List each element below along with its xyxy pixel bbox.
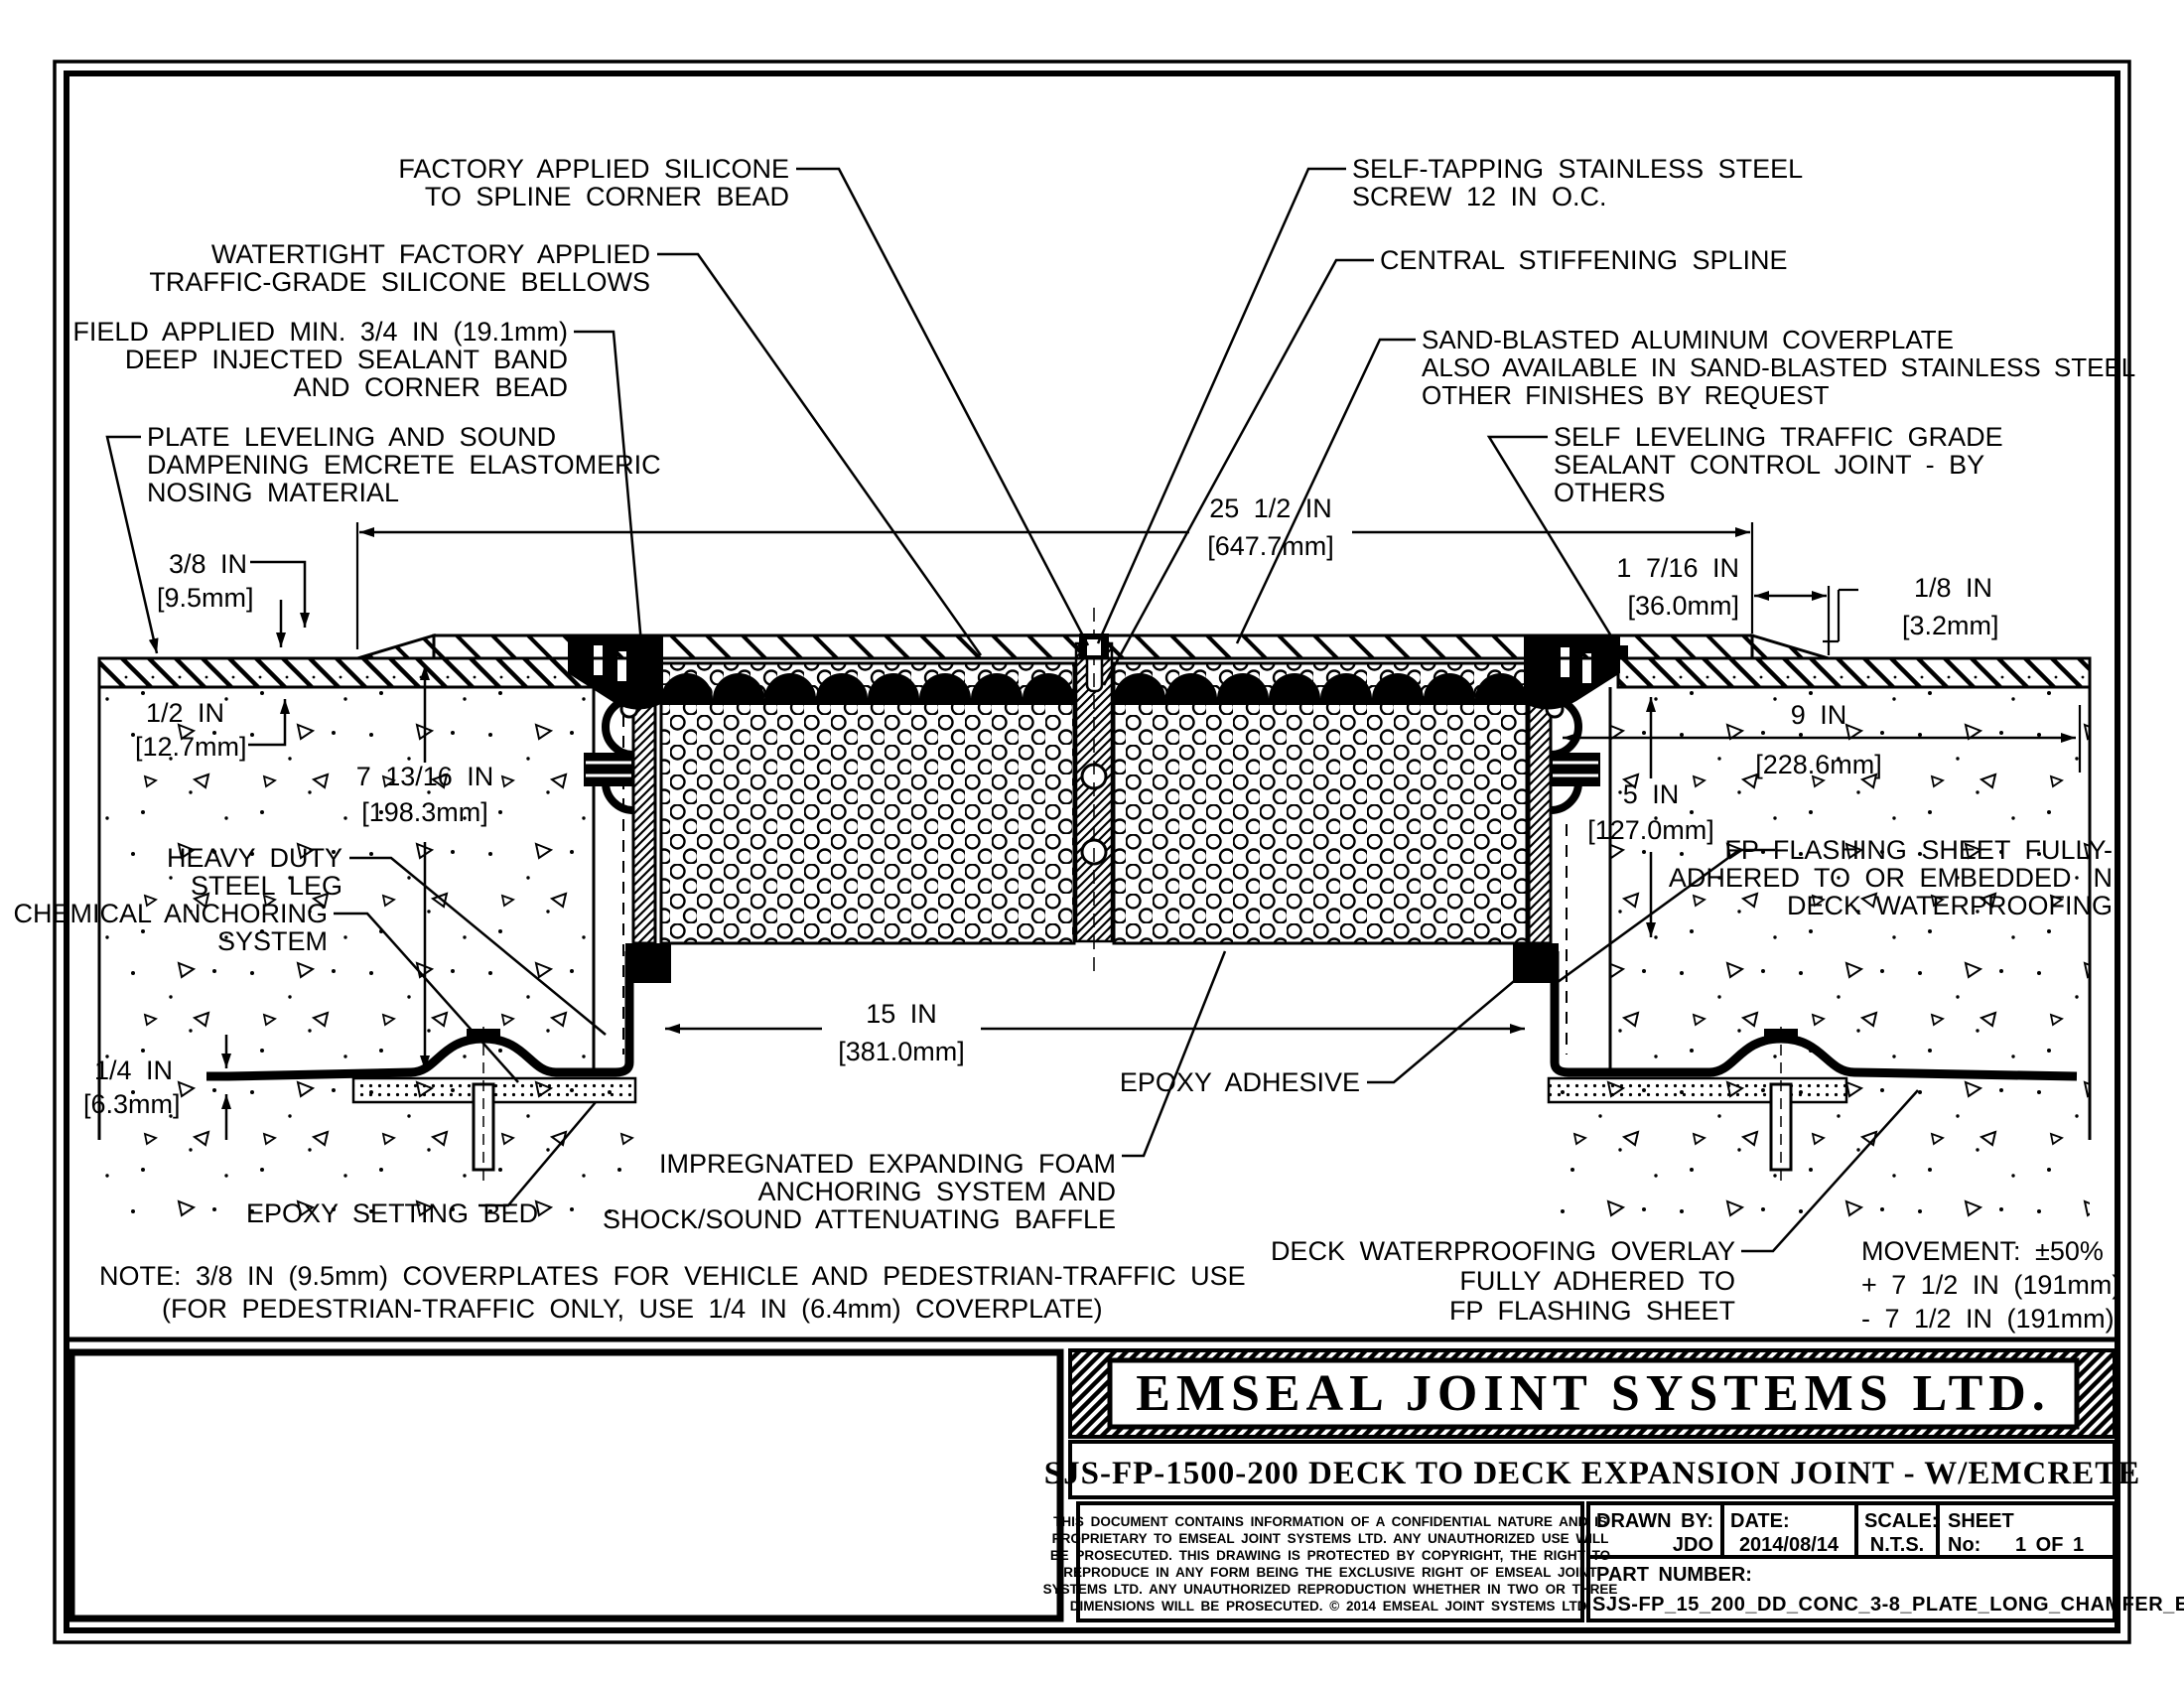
- label: SYSTEM: [217, 926, 328, 956]
- label: PLATE LEVELING AND SOUND: [147, 422, 556, 452]
- label: STEEL LEG: [191, 871, 342, 901]
- movement-plus: + 7 1/2 IN (191mm): [1861, 1270, 2120, 1300]
- dim-blockout-mm: [198.3mm]: [361, 797, 488, 827]
- dim-cover-width: 25 1/2 IN [647.7mm]: [357, 493, 1752, 649]
- label: NOSING MATERIAL: [147, 478, 399, 507]
- title-block: EMSEAL JOINT SYSTEMS LTD. SJS-FP-1500-20…: [71, 1350, 2184, 1620]
- dim-topping-in: 1/2 IN: [146, 698, 224, 728]
- dim-plate-thk-mm: [9.5mm]: [157, 583, 254, 613]
- legal-line: REPRODUCE IN ANY FORM BEING THE EXCLUSIV…: [1063, 1565, 1597, 1580]
- foam-right: [1114, 663, 1527, 943]
- date-value: 2014/08/14: [1739, 1534, 1840, 1556]
- label: DAMPENING EMCRETE ELASTOMERIC: [147, 450, 661, 480]
- legal-line: PROPRIETARY TO EMSEAL JOINT SYSTEMS LTD.…: [1052, 1531, 1609, 1546]
- dim-blockout-in: 7 13/16 IN: [356, 762, 494, 791]
- legal-line: BE PROSECUTED. THIS DRAWING IS PROTECTED…: [1050, 1548, 1610, 1563]
- dim-foam-depth-in: 5 IN: [1623, 779, 1680, 809]
- dim-recess: 1/8 IN [3.2mm]: [1823, 573, 1999, 641]
- field-drawn-by: DRAWN BY: JDO: [1596, 1510, 1713, 1556]
- drawing-title: SJS-FP-1500-200 DECK TO DECK EXPANSION J…: [1044, 1456, 2141, 1491]
- dim-recess-mm: [3.2mm]: [1902, 611, 1999, 640]
- dim-overlay-in: 9 IN: [1791, 700, 1847, 730]
- dim-flashing-mm: [6.3mm]: [83, 1089, 181, 1119]
- label: OTHER FINISHES BY REQUEST: [1422, 380, 1830, 410]
- sheet-value: 1 OF 1: [2015, 1534, 2084, 1556]
- coverplate-chamfer-right: [1752, 635, 1829, 658]
- scale-label: SCALE:: [1864, 1510, 1938, 1532]
- label: FIELD APPLIED MIN. 3/4 IN (19.1mm): [72, 317, 568, 347]
- label: FULLY ADHERED TO: [1459, 1266, 1735, 1296]
- dim-chamfer-in: 1 7/16 IN: [1616, 553, 1739, 583]
- dim-foam-depth-mm: [127.0mm]: [1587, 815, 1714, 845]
- annotation-epoxy-adhesive: EPOXY ADHESIVE: [1120, 955, 1545, 1097]
- date-label: DATE:: [1730, 1510, 1790, 1532]
- coverplate-chamfer-left: [357, 635, 434, 658]
- dim-overlay-mm: [228.6mm]: [1755, 750, 1882, 779]
- label: CENTRAL STIFFENING SPLINE: [1380, 245, 1788, 275]
- label: OTHERS: [1554, 478, 1666, 507]
- drawn-by-value: JDO: [1673, 1534, 1713, 1556]
- label: SHOCK/SOUND ATTENUATING BAFFLE: [603, 1204, 1116, 1234]
- label: SELF-TAPPING STAINLESS STEEL: [1352, 154, 1803, 184]
- legal-box: THIS DOCUMENT CONTAINS INFORMATION OF A …: [1043, 1503, 1618, 1620]
- note: NOTE: 3/8 IN (9.5mm) COVERPLATES FOR VEH…: [99, 1261, 1246, 1324]
- fields-grid: DRAWN BY: JDO DATE: 2014/08/14 SCALE: N.…: [1588, 1503, 2184, 1620]
- leg-bolt-right: [1551, 753, 1600, 786]
- label: WATERTIGHT FACTORY APPLIED: [211, 239, 650, 269]
- dim-recess-in: 1/8 IN: [1914, 573, 1992, 603]
- label: CHEMICAL ANCHORING: [13, 899, 328, 928]
- drawing-title-bar: SJS-FP-1500-200 DECK TO DECK EXPANSION J…: [1044, 1442, 2141, 1497]
- label: AND CORNER BEAD: [293, 372, 568, 402]
- label: FP FLASHING SHEET FULLY-: [1724, 835, 2113, 865]
- annotation-movement: MOVEMENT: ±50% + 7 1/2 IN (191mm) - 7 1/…: [1861, 1236, 2120, 1334]
- label: EPOXY ADHESIVE: [1120, 1067, 1360, 1097]
- dim-foam-width: 15 IN [381.0mm]: [665, 999, 1525, 1066]
- dim-flashing-in: 1/4 IN: [94, 1055, 173, 1085]
- field-part-number: PART NUMBER: SJS-FP_15_200_DD_CONC_3-8_P…: [1592, 1564, 2184, 1616]
- label: DECK WATERPROOFING OVERLAY: [1271, 1236, 1735, 1266]
- foam-left: [661, 663, 1074, 943]
- legal-line: SYSTEMS LTD. ANY UNAUTHORIZED REPRODUCTI…: [1043, 1582, 1618, 1597]
- label: DECK WATERPROOFING: [1787, 891, 2113, 920]
- label: DEEP INJECTED SEALANT BAND: [125, 345, 568, 374]
- legal-line: THIS DOCUMENT CONTAINS INFORMATION OF A …: [1053, 1514, 1607, 1529]
- leg-foot-left: [625, 943, 671, 983]
- emcrete-topping-left: [99, 658, 594, 687]
- company-banner: EMSEAL JOINT SYSTEMS LTD.: [1070, 1350, 2115, 1437]
- notes-box: [71, 1352, 1060, 1618]
- dim-plate-thk-in: 3/8 IN: [169, 549, 247, 579]
- label: TO SPLINE CORNER BEAD: [425, 182, 789, 211]
- field-scale: SCALE: N.T.S.: [1864, 1510, 1938, 1556]
- sheet-label: SHEET: [1948, 1510, 2014, 1532]
- field-date: DATE: 2014/08/14: [1730, 1510, 1840, 1556]
- legal-line: DIMENSIONS WILL BE PROSECUTED. © 2014 EM…: [1070, 1599, 1591, 1614]
- scale-value: N.T.S.: [1870, 1534, 1924, 1556]
- movement-rating: MOVEMENT: ±50%: [1861, 1236, 2104, 1266]
- dim-cover-width-in: 25 1/2 IN: [1209, 493, 1332, 523]
- dim-plate-thickness: 3/8 IN [9.5mm]: [157, 549, 305, 647]
- drawing-sheet: 25 1/2 IN [647.7mm] 1 7/16 IN [36.0mm] 1…: [0, 0, 2184, 1688]
- note-line-1: NOTE: 3/8 IN (9.5mm) COVERPLATES FOR VEH…: [99, 1261, 1246, 1291]
- epoxy-setting-bed-right: [1549, 1078, 1846, 1102]
- label: EPOXY SETTING BED: [246, 1198, 538, 1228]
- part-number-value: SJS-FP_15_200_DD_CONC_3-8_PLATE_LONG_CHA…: [1592, 1594, 2184, 1616]
- label: ANCHORING SYSTEM AND: [757, 1177, 1116, 1206]
- dim-foam-width-mm: [381.0mm]: [838, 1037, 965, 1066]
- company-name: EMSEAL JOINT SYSTEMS LTD.: [1136, 1365, 2051, 1422]
- label: SELF LEVELING TRAFFIC GRADE: [1554, 422, 2003, 452]
- sheet-no-label: No:: [1948, 1534, 1980, 1556]
- dim-topping-mm: [12.7mm]: [135, 732, 247, 762]
- dim-chamfer-mm: [36.0mm]: [1627, 591, 1739, 621]
- dim-foam-width-in: 15 IN: [866, 999, 937, 1029]
- coverplate: [357, 633, 1829, 659]
- deck-overlay-band-right: [1618, 658, 2090, 687]
- dim-cover-width-mm: [647.7mm]: [1207, 531, 1334, 561]
- label: FACTORY APPLIED SILICONE: [398, 154, 789, 184]
- central-spline: [1076, 608, 1112, 973]
- label: FP FLASHING SHEET: [1449, 1296, 1735, 1326]
- label: ADHERED TO OR EMBEDDED IN: [1669, 863, 2113, 893]
- label: HEAVY DUTY: [167, 843, 342, 873]
- drawn-by-label: DRAWN BY:: [1596, 1510, 1713, 1532]
- part-number-label: PART NUMBER:: [1596, 1564, 1752, 1586]
- note-line-2: (FOR PEDESTRIAN-TRAFFIC ONLY, USE 1/4 IN…: [162, 1294, 1103, 1324]
- label: IMPREGNATED EXPANDING FOAM: [659, 1149, 1116, 1179]
- label: TRAFFIC-GRADE SILICONE BELLOWS: [149, 267, 650, 297]
- label: SAND-BLASTED ALUMINUM COVERPLATE: [1422, 325, 1954, 354]
- field-sheet: SHEET No: 1 OF 1: [1948, 1510, 2084, 1556]
- label: SEALANT CONTROL JOINT - BY: [1554, 450, 1984, 480]
- movement-minus: - 7 1/2 IN (191mm): [1861, 1304, 2115, 1334]
- label: SCREW 12 IN O.C.: [1352, 182, 1607, 211]
- annotation-plate-leveling: PLATE LEVELING AND SOUND DAMPENING EMCRE…: [107, 422, 661, 653]
- leg-bolt-left: [584, 753, 633, 786]
- label: ALSO AVAILABLE IN SAND-BLASTED STAINLESS…: [1422, 352, 2135, 382]
